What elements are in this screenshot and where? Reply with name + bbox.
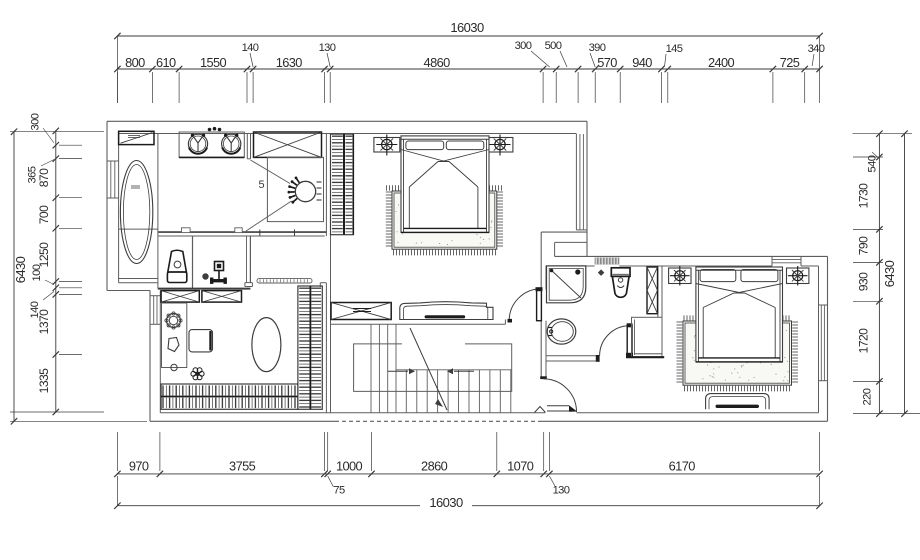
svg-text:140: 140 [242, 42, 259, 54]
svg-text:570: 570 [597, 55, 617, 70]
svg-text:790: 790 [857, 236, 871, 255]
svg-text:145: 145 [666, 43, 683, 55]
svg-text:16030: 16030 [450, 20, 484, 35]
svg-text:2860: 2860 [421, 459, 448, 474]
svg-text:1630: 1630 [276, 55, 303, 70]
svg-text:500: 500 [545, 40, 562, 52]
svg-text:2400: 2400 [708, 55, 735, 70]
svg-text:1720: 1720 [857, 328, 871, 354]
svg-text:1070: 1070 [507, 459, 534, 474]
svg-text:970: 970 [129, 459, 149, 474]
svg-text:16030: 16030 [429, 495, 463, 510]
svg-text:1730: 1730 [857, 183, 871, 209]
svg-text:700: 700 [37, 205, 51, 224]
svg-text:1370: 1370 [37, 309, 51, 335]
svg-text:75: 75 [333, 485, 345, 497]
svg-text:870: 870 [37, 168, 51, 187]
svg-text:220: 220 [862, 388, 874, 405]
svg-text:540: 540 [867, 155, 879, 172]
svg-text:6170: 6170 [669, 459, 696, 474]
svg-text:725: 725 [780, 55, 800, 70]
svg-text:5: 5 [258, 179, 264, 191]
svg-text:300: 300 [515, 40, 532, 52]
svg-text:1550: 1550 [200, 55, 227, 70]
svg-text:130: 130 [319, 42, 336, 54]
svg-text:610: 610 [156, 55, 176, 70]
svg-text:300: 300 [30, 113, 42, 130]
svg-text:800: 800 [125, 55, 145, 70]
svg-text:940: 940 [632, 55, 652, 70]
svg-text:930: 930 [857, 272, 871, 291]
svg-text:390: 390 [589, 42, 606, 54]
svg-text:6430: 6430 [882, 260, 897, 287]
svg-text:6430: 6430 [13, 256, 28, 283]
svg-text:1000: 1000 [336, 459, 363, 474]
svg-text:100: 100 [31, 264, 43, 281]
svg-text:3755: 3755 [229, 459, 256, 474]
svg-text:1335: 1335 [37, 368, 51, 394]
svg-text:340: 340 [808, 43, 825, 55]
svg-text:1250: 1250 [37, 242, 51, 268]
svg-text:4860: 4860 [424, 55, 451, 70]
